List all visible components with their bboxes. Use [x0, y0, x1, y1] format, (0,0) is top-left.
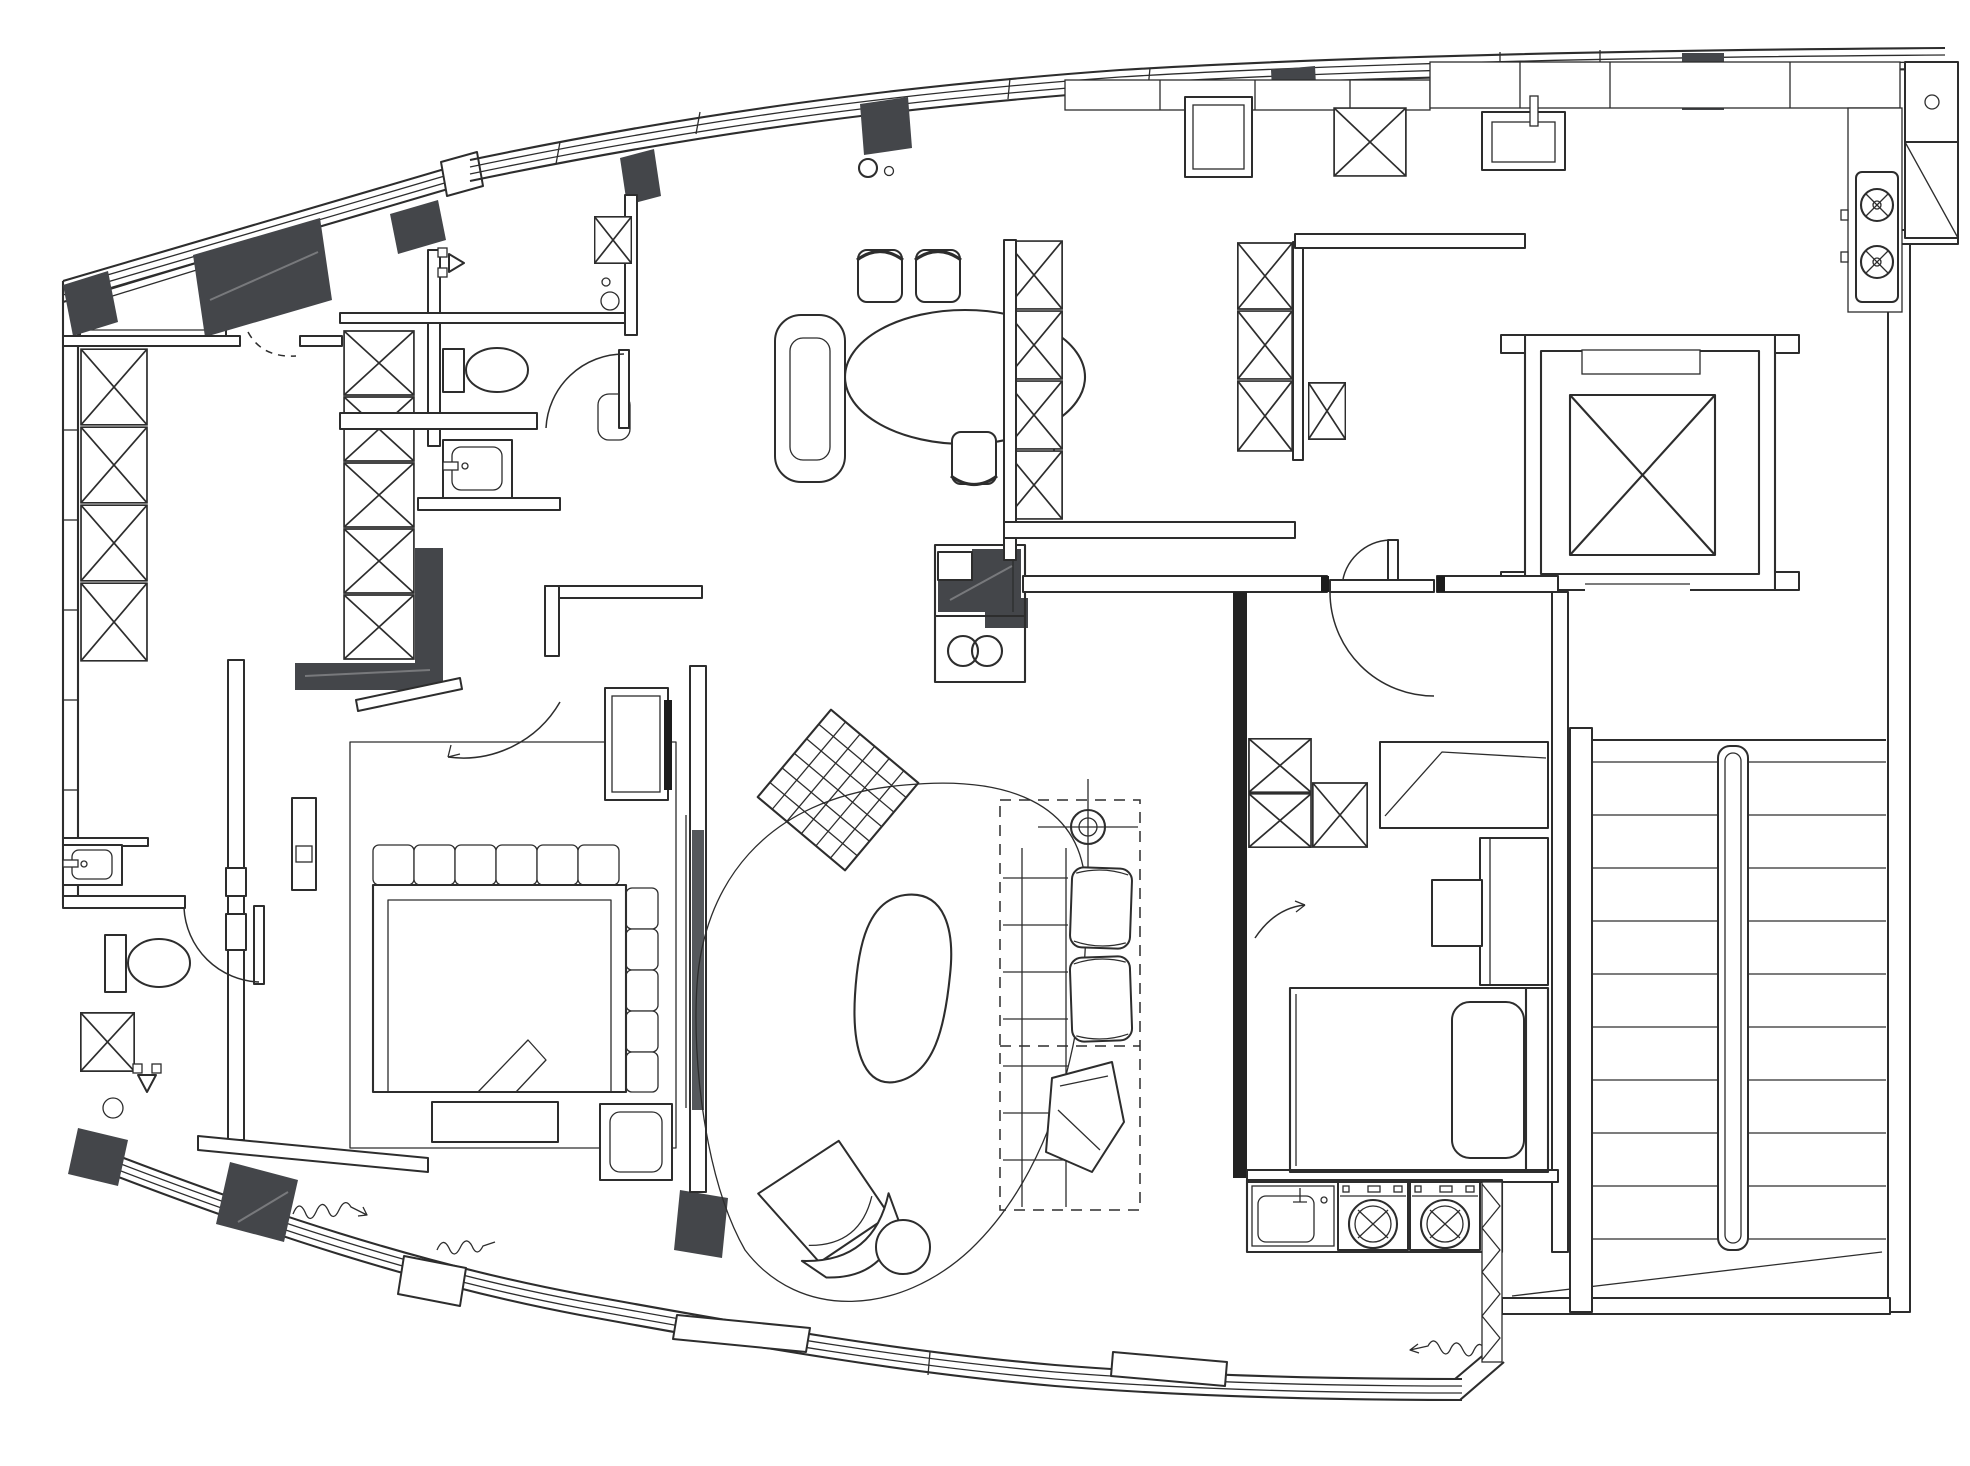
laundry-sink	[1252, 1186, 1334, 1246]
wardrobe-hatched	[344, 331, 414, 395]
stairwell	[1570, 728, 1886, 1312]
laundry-niche	[1247, 1180, 1502, 1362]
duvet-fold	[478, 1040, 546, 1092]
column	[860, 97, 912, 155]
flange	[1501, 335, 1525, 353]
throw-blanket	[1046, 1062, 1124, 1172]
tall-cabinets-right	[1905, 62, 1958, 238]
toilet	[105, 935, 190, 992]
dining-chair	[951, 432, 997, 485]
column	[68, 1128, 128, 1186]
door-leaf	[1330, 580, 1434, 592]
exterior-wall-right	[1888, 238, 1910, 1312]
side-table	[876, 1220, 930, 1274]
entry-door-hardware	[859, 159, 894, 177]
dresser	[1480, 838, 1548, 985]
wardrobe-hatched	[81, 583, 147, 661]
exterior-wall-left	[63, 281, 78, 905]
call-panel	[1582, 350, 1700, 374]
wardrobe-hatched	[81, 427, 147, 503]
jamb-cap	[1437, 576, 1445, 592]
shower-head-icon	[133, 1064, 161, 1092]
window-joint	[1111, 1352, 1227, 1386]
wardrobe-hatched	[1249, 739, 1311, 792]
duct-hatched	[81, 1013, 134, 1071]
wall	[1293, 242, 1303, 460]
burner-symbol	[948, 636, 978, 666]
dining-chair	[857, 250, 903, 302]
drain	[602, 278, 610, 286]
range-hood-cabinet	[1185, 97, 1252, 177]
bed-duvet	[388, 900, 611, 1092]
direction-arrow	[1255, 905, 1305, 938]
door-swing	[1330, 592, 1434, 696]
column	[674, 1190, 728, 1258]
washing-machine	[1338, 1182, 1408, 1250]
shower-head-icon	[438, 248, 464, 277]
coffee-table	[854, 895, 951, 1083]
desk	[1380, 742, 1548, 828]
hatched-strip	[1482, 1182, 1502, 1362]
washing-machine	[1410, 1182, 1480, 1250]
dining-chair	[915, 250, 961, 302]
tv-screen	[664, 700, 672, 790]
pantry-hatched	[1238, 381, 1292, 451]
jamb-cap	[1321, 576, 1329, 592]
corridor	[1004, 522, 1558, 592]
bed-mattress	[373, 885, 626, 1092]
floor-plan-drawing	[0, 0, 1970, 1466]
second-bedroom	[1233, 580, 1568, 1252]
nightstand	[1432, 880, 1482, 946]
master-bedroom	[198, 548, 676, 1180]
elevator-shaft	[1295, 234, 1799, 592]
pantry-hatched	[1309, 383, 1346, 439]
wardrobe-hatched	[344, 595, 414, 659]
door-swing	[448, 702, 560, 758]
dining-bench	[775, 315, 845, 482]
flange	[1775, 572, 1799, 590]
stair-stringer	[1718, 746, 1748, 1250]
sofa-cushion	[1070, 867, 1133, 949]
toilet	[443, 348, 528, 392]
sofa-zone	[1000, 779, 1140, 1210]
wardrobe-hatched	[81, 349, 147, 425]
floor-plan-canvas	[0, 0, 1970, 1466]
walk-in-closet	[63, 331, 414, 661]
floor-drain	[103, 1098, 123, 1118]
sofa-cushion	[1070, 956, 1133, 1042]
flange	[1775, 335, 1799, 353]
pantry-hatched	[1238, 243, 1292, 309]
burner-symbol	[972, 636, 1002, 666]
woven-pouf	[758, 710, 919, 871]
wardrobe-hatched	[344, 529, 414, 593]
wall	[1552, 592, 1568, 1252]
window-joint	[398, 1256, 466, 1306]
wall-understair	[1502, 1298, 1890, 1314]
tv-cabinet	[545, 586, 702, 800]
bed-end-bench	[432, 1102, 558, 1142]
column	[390, 200, 446, 254]
nightstand	[292, 798, 316, 890]
living-room	[696, 710, 1140, 1302]
understair-diagonal	[1512, 1252, 1882, 1296]
wall-dark	[415, 548, 443, 663]
wall	[1295, 234, 1525, 248]
bed-headboard-cushions	[373, 845, 619, 885]
floor-drain	[601, 292, 619, 310]
appliance-cabinet	[600, 1104, 672, 1180]
wardrobe-hatched	[344, 463, 414, 527]
cooktop-counter	[1841, 108, 1902, 312]
bed-side-cushions	[626, 888, 658, 1092]
kitchen	[1004, 62, 1958, 560]
door-swing	[184, 908, 259, 982]
wall	[1004, 240, 1016, 560]
hall-vanity-sink	[63, 845, 122, 885]
wardrobe-hatched	[1249, 794, 1311, 847]
powder-room	[63, 660, 264, 1140]
door-leaf	[254, 906, 264, 984]
bed	[1290, 988, 1548, 1172]
pillow	[1452, 1002, 1524, 1158]
pantry-hatched	[1238, 311, 1292, 379]
vanity-sink	[443, 440, 512, 498]
column	[216, 1162, 298, 1242]
counter-top	[1430, 62, 1900, 108]
wall-dark	[1233, 592, 1247, 1178]
ceiling-fan-icon	[1038, 779, 1138, 875]
wardrobe-hatched	[81, 505, 147, 581]
wall	[1570, 728, 1592, 1312]
duct-hatched	[595, 217, 632, 264]
ceiling-break-arc	[248, 332, 296, 356]
window-joint	[673, 1315, 810, 1352]
tall-cabinet-hatched	[1334, 108, 1406, 176]
wardrobe-hatched	[1313, 783, 1367, 847]
door-leaf	[619, 350, 629, 428]
elevator-car	[1570, 395, 1715, 555]
